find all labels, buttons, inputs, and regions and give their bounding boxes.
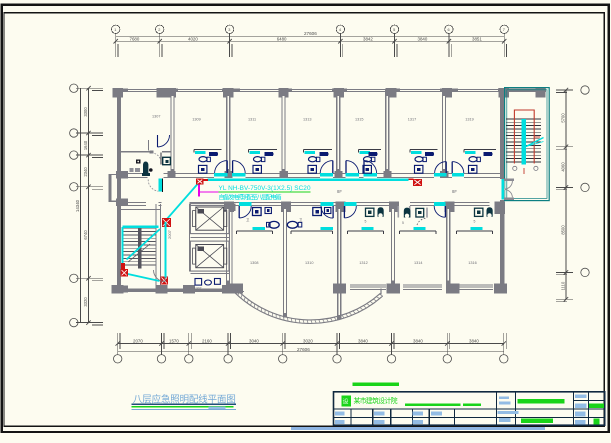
svg-text:自备发电照明配至八层配电箱: 自备发电照明配至八层配电箱 (219, 193, 282, 201)
svg-text:6480: 6480 (277, 36, 287, 41)
svg-text:3: 3 (228, 28, 230, 32)
svg-text:3840: 3840 (418, 36, 428, 41)
svg-text:YL NH-BV-750V-3(1X2.5) SC20: YL NH-BV-750V-3(1X2.5) SC20 (219, 185, 311, 192)
svg-text:1311: 1311 (248, 118, 256, 122)
svg-text:1314: 1314 (414, 261, 422, 265)
svg-text:27606: 27606 (304, 31, 317, 36)
svg-text:1319: 1319 (465, 118, 473, 122)
svg-text:3320: 3320 (83, 297, 88, 307)
svg-text:2007: 2007 (167, 229, 172, 239)
svg-text:4060: 4060 (561, 162, 566, 172)
svg-text:8F: 8F (337, 189, 342, 194)
svg-text:2340: 2340 (83, 167, 88, 177)
svg-text:3040: 3040 (249, 339, 259, 344)
svg-text:1313: 1313 (303, 118, 311, 122)
svg-text:3300: 3300 (83, 107, 88, 117)
svg-text:7: 7 (503, 28, 505, 32)
svg-text:5: 5 (402, 221, 404, 225)
svg-text:5: 5 (393, 28, 395, 32)
svg-text:6: 6 (448, 28, 450, 32)
svg-text:14340: 14340 (75, 199, 80, 212)
svg-text:5700: 5700 (561, 113, 566, 123)
svg-text:1317: 1317 (408, 118, 416, 122)
svg-text:27606: 27606 (297, 347, 310, 352)
svg-text:8500: 8500 (561, 225, 566, 235)
svg-text:3851: 3851 (472, 36, 482, 41)
svg-text:2: 2 (158, 28, 160, 32)
svg-text:3020: 3020 (303, 339, 313, 344)
svg-text:某市建筑设计院: 某市建筑设计院 (354, 396, 398, 405)
svg-text:1110: 1110 (561, 281, 566, 290)
svg-text:1307: 1307 (152, 115, 160, 119)
svg-text:3842: 3842 (363, 36, 373, 41)
svg-text:5: 5 (365, 220, 367, 224)
svg-text:1308: 1308 (250, 261, 258, 265)
svg-text:1312: 1312 (359, 261, 367, 265)
svg-text:1316: 1316 (468, 261, 476, 265)
svg-text:7680: 7680 (130, 36, 140, 41)
svg-text:6740: 6740 (83, 230, 88, 240)
svg-text:1309: 1309 (192, 118, 200, 122)
svg-text:3840: 3840 (469, 339, 479, 344)
svg-text:8F: 8F (452, 189, 457, 194)
svg-text:1307: 1307 (194, 287, 202, 291)
svg-text:1: 1 (114, 28, 116, 32)
svg-text:1640: 1640 (83, 140, 88, 150)
svg-text:2160: 2160 (202, 339, 212, 344)
svg-text:5: 5 (474, 220, 476, 224)
svg-text:2070: 2070 (133, 339, 143, 344)
svg-text:4020: 4020 (188, 36, 198, 41)
svg-text:4: 4 (339, 28, 341, 32)
svg-text:3840: 3840 (358, 339, 368, 344)
svg-text:1315: 1315 (355, 118, 363, 122)
svg-text:3840: 3840 (413, 339, 423, 344)
svg-text:设: 设 (343, 398, 349, 406)
svg-text:1310: 1310 (305, 261, 313, 265)
svg-text:1570: 1570 (169, 339, 179, 344)
